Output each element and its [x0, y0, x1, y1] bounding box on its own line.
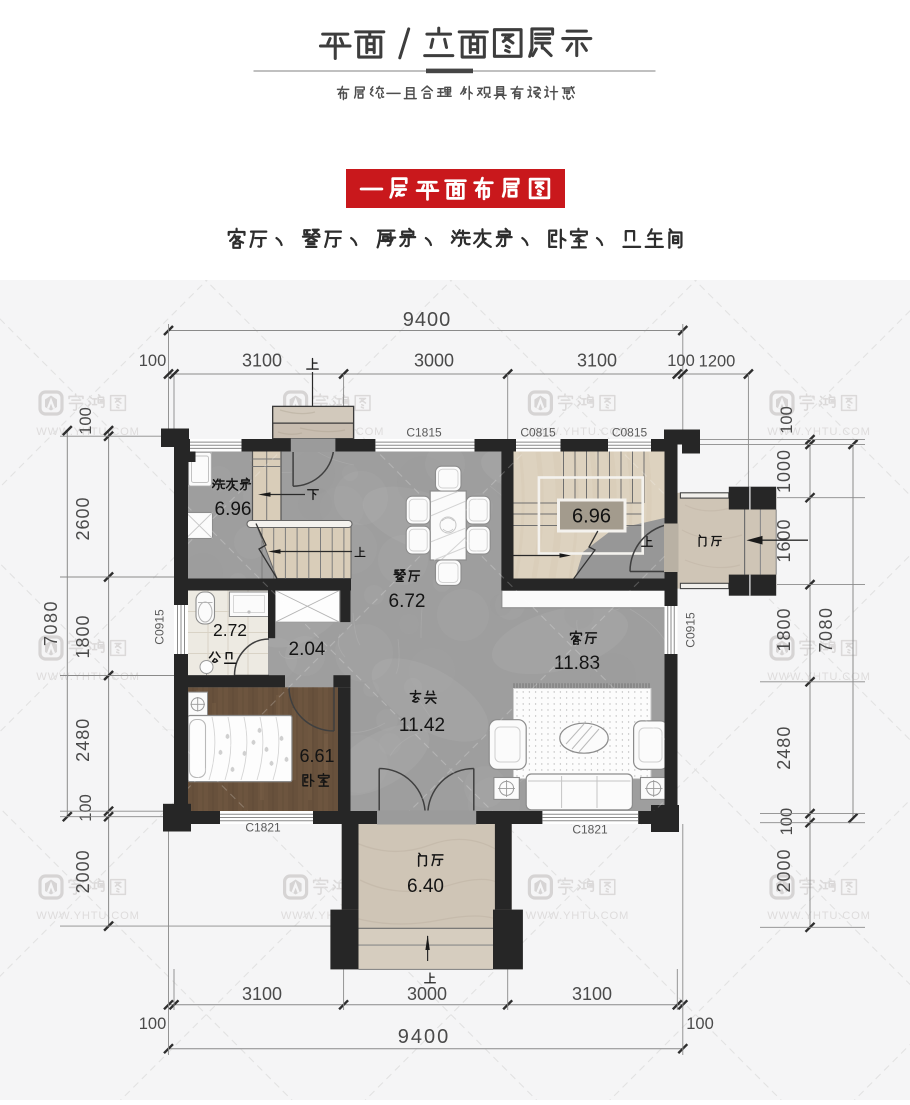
- svg-text:9400: 9400: [398, 1026, 451, 1048]
- svg-text:2.72: 2.72: [213, 620, 247, 640]
- svg-text:100: 100: [139, 1015, 167, 1033]
- svg-text:2000: 2000: [774, 848, 794, 892]
- svg-text:C1821: C1821: [245, 821, 281, 835]
- svg-text:9400: 9400: [403, 309, 452, 331]
- svg-text:3000: 3000: [407, 984, 447, 1004]
- svg-text:3100: 3100: [242, 351, 282, 371]
- svg-text:7080: 7080: [816, 606, 836, 652]
- svg-text:WWW.YHTU.COM: WWW.YHTU.COM: [36, 910, 139, 922]
- svg-text:C0815: C0815: [612, 426, 648, 440]
- svg-text:C1821: C1821: [572, 823, 608, 837]
- svg-text:3100: 3100: [572, 984, 612, 1004]
- svg-text:1200: 1200: [699, 353, 736, 371]
- svg-text:2480: 2480: [774, 726, 794, 770]
- svg-text:7080: 7080: [41, 600, 61, 646]
- svg-text:100: 100: [77, 794, 95, 822]
- svg-text:3100: 3100: [242, 984, 282, 1004]
- svg-text:2480: 2480: [73, 718, 93, 762]
- svg-text:1000: 1000: [774, 449, 794, 493]
- svg-text:C0915: C0915: [684, 612, 698, 648]
- svg-text:3000: 3000: [414, 351, 454, 371]
- svg-text:6.96: 6.96: [215, 499, 252, 520]
- svg-text:6.40: 6.40: [407, 876, 444, 897]
- svg-text:3100: 3100: [577, 351, 617, 371]
- svg-text:C0815: C0815: [520, 426, 556, 440]
- svg-text:6.72: 6.72: [389, 591, 426, 612]
- svg-text:WWW.YHTU.COM: WWW.YHTU.COM: [36, 671, 139, 683]
- svg-text:100: 100: [686, 1015, 714, 1033]
- svg-text:6.96: 6.96: [572, 506, 611, 528]
- svg-text:100: 100: [77, 407, 95, 435]
- svg-text:100: 100: [778, 406, 796, 434]
- svg-text:11.42: 11.42: [399, 715, 445, 736]
- svg-text:2000: 2000: [73, 849, 93, 893]
- svg-text:6.61: 6.61: [299, 746, 334, 766]
- svg-text:11.83: 11.83: [554, 653, 600, 674]
- svg-text:100: 100: [139, 352, 167, 370]
- svg-text:WWW.YHTU.COM: WWW.YHTU.COM: [767, 910, 870, 922]
- svg-text:C1815: C1815: [406, 426, 442, 440]
- svg-text:C0915: C0915: [153, 609, 167, 645]
- svg-text:100: 100: [667, 352, 695, 370]
- svg-text:2.04: 2.04: [289, 639, 326, 660]
- svg-text:2600: 2600: [73, 496, 93, 540]
- svg-text:1800: 1800: [774, 607, 794, 651]
- svg-text:100: 100: [778, 808, 796, 836]
- svg-text:WWW.YHTU.COM: WWW.YHTU.COM: [767, 671, 870, 683]
- svg-text:1800: 1800: [73, 614, 93, 658]
- svg-text:WWW.YHTU.COM: WWW.YHTU.COM: [526, 910, 629, 922]
